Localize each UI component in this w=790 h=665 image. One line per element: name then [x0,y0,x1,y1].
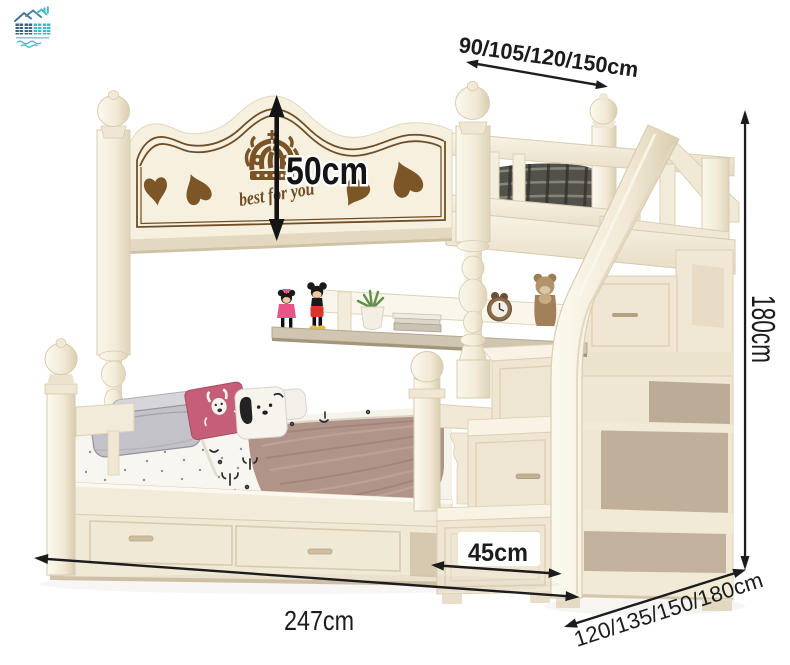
svg-text:247cm: 247cm [284,605,354,636]
svg-text:50cm: 50cm [286,150,368,193]
svg-text:180cm: 180cm [745,295,782,363]
svg-text:45cm: 45cm [468,539,528,567]
